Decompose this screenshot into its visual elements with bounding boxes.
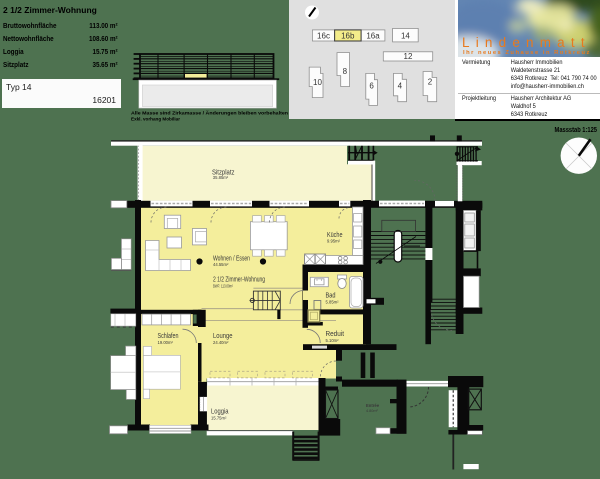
svg-text:Alle Masse sind Zirkamasse / Ä: Alle Masse sind Zirkamasse / Änderungen …: [131, 110, 288, 116]
svg-text:BWF: 113.00m²: BWF: 113.00m²: [213, 284, 233, 289]
svg-text:Reduit: Reduit: [326, 329, 345, 338]
svg-text:8: 8: [343, 67, 348, 76]
svg-text:2: 2: [428, 78, 433, 87]
svg-text:5.10m²: 5.10m²: [326, 338, 340, 343]
svg-text:Exkl. vorhang Mobiliar: Exkl. vorhang Mobiliar: [131, 116, 180, 121]
svg-text:4: 4: [398, 82, 403, 91]
svg-text:Loggia: Loggia: [211, 407, 229, 416]
svg-text:19.00m²: 19.00m²: [158, 340, 174, 345]
svg-text:12: 12: [404, 52, 413, 61]
svg-text:9.95m²: 9.95m²: [327, 239, 341, 244]
svg-text:Entrée: Entrée: [366, 403, 380, 408]
svg-text:5.85m²: 5.85m²: [326, 299, 340, 304]
svg-text:16a: 16a: [366, 32, 380, 41]
svg-text:15.75m²: 15.75m²: [211, 415, 227, 420]
svg-text:35.85m²: 35.85m²: [213, 175, 229, 180]
svg-text:Schlafen: Schlafen: [158, 331, 179, 340]
svg-text:4.80m²: 4.80m²: [366, 409, 379, 413]
svg-text:2 1/2 Zimmer-Wohnung: 2 1/2 Zimmer-Wohnung: [213, 275, 265, 284]
svg-text:Bad: Bad: [326, 291, 336, 300]
svg-text:16b: 16b: [341, 32, 355, 41]
svg-text:44.55m²: 44.55m²: [213, 262, 229, 267]
svg-text:14: 14: [401, 31, 410, 40]
svg-text:Küche: Küche: [327, 230, 343, 239]
svg-text:24.40m²: 24.40m²: [213, 340, 229, 345]
svg-text:10: 10: [313, 78, 322, 87]
svg-text:Lounge: Lounge: [213, 331, 233, 340]
svg-text:6: 6: [369, 82, 374, 91]
svg-text:16c: 16c: [317, 32, 330, 41]
